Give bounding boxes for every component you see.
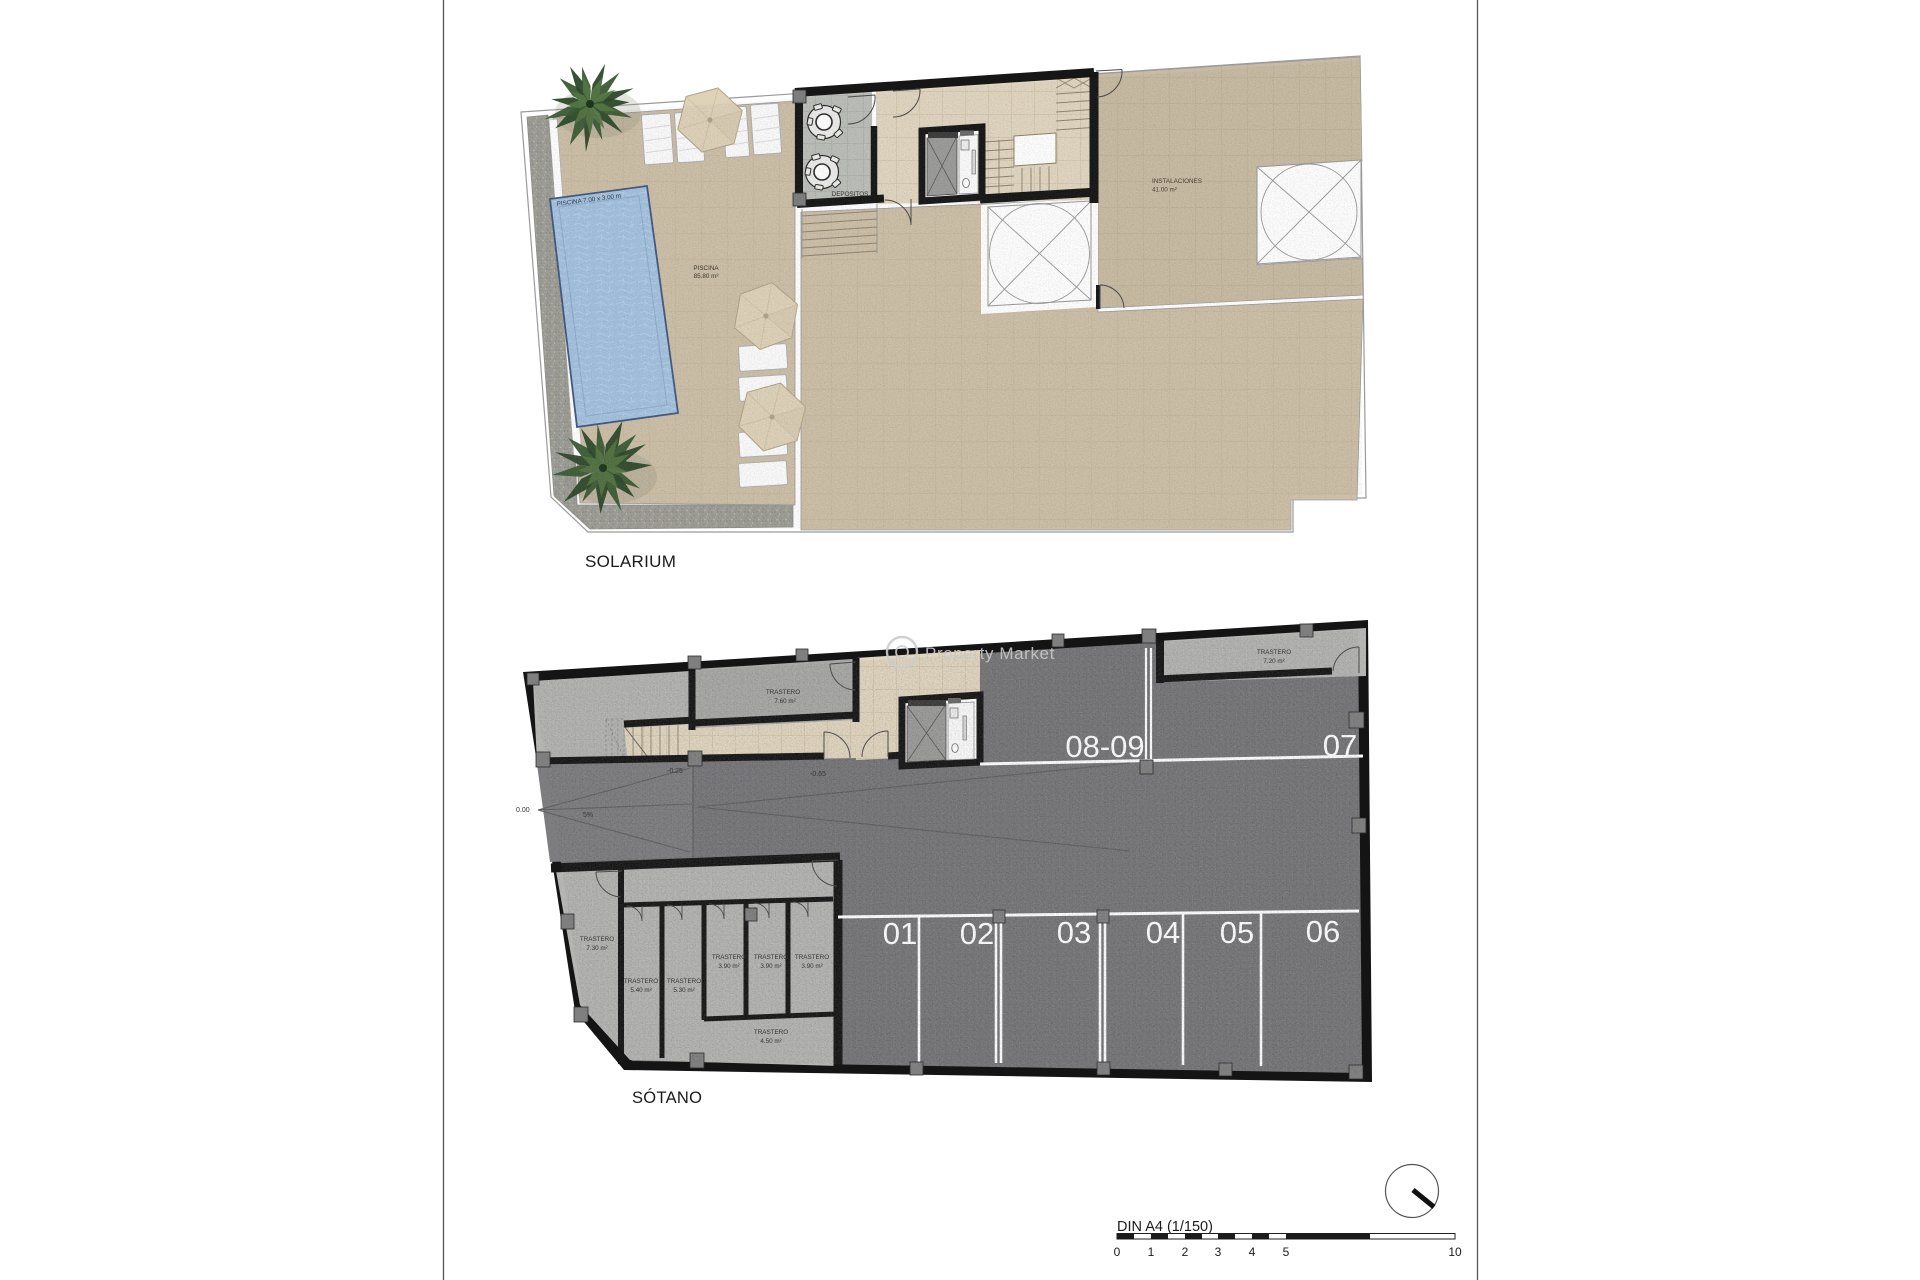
svg-text:DIN A4 (1/150): DIN A4 (1/150) [1117,1219,1213,1235]
svg-text:SOLARIUM: SOLARIUM [585,552,676,571]
svg-text:0.00: 0.00 [516,807,530,814]
svg-text:0: 0 [1114,1245,1121,1259]
svg-text:4: 4 [1249,1245,1256,1259]
svg-text:SÓTANO: SÓTANO [632,1088,702,1107]
svg-text:2: 2 [1182,1245,1189,1259]
svg-text:10: 10 [1448,1245,1462,1259]
svg-text:1: 1 [1148,1245,1155,1259]
svg-text:Property Market: Property Market [925,644,1055,663]
svg-text:3: 3 [1215,1245,1222,1259]
svg-text:5: 5 [1283,1245,1290,1259]
